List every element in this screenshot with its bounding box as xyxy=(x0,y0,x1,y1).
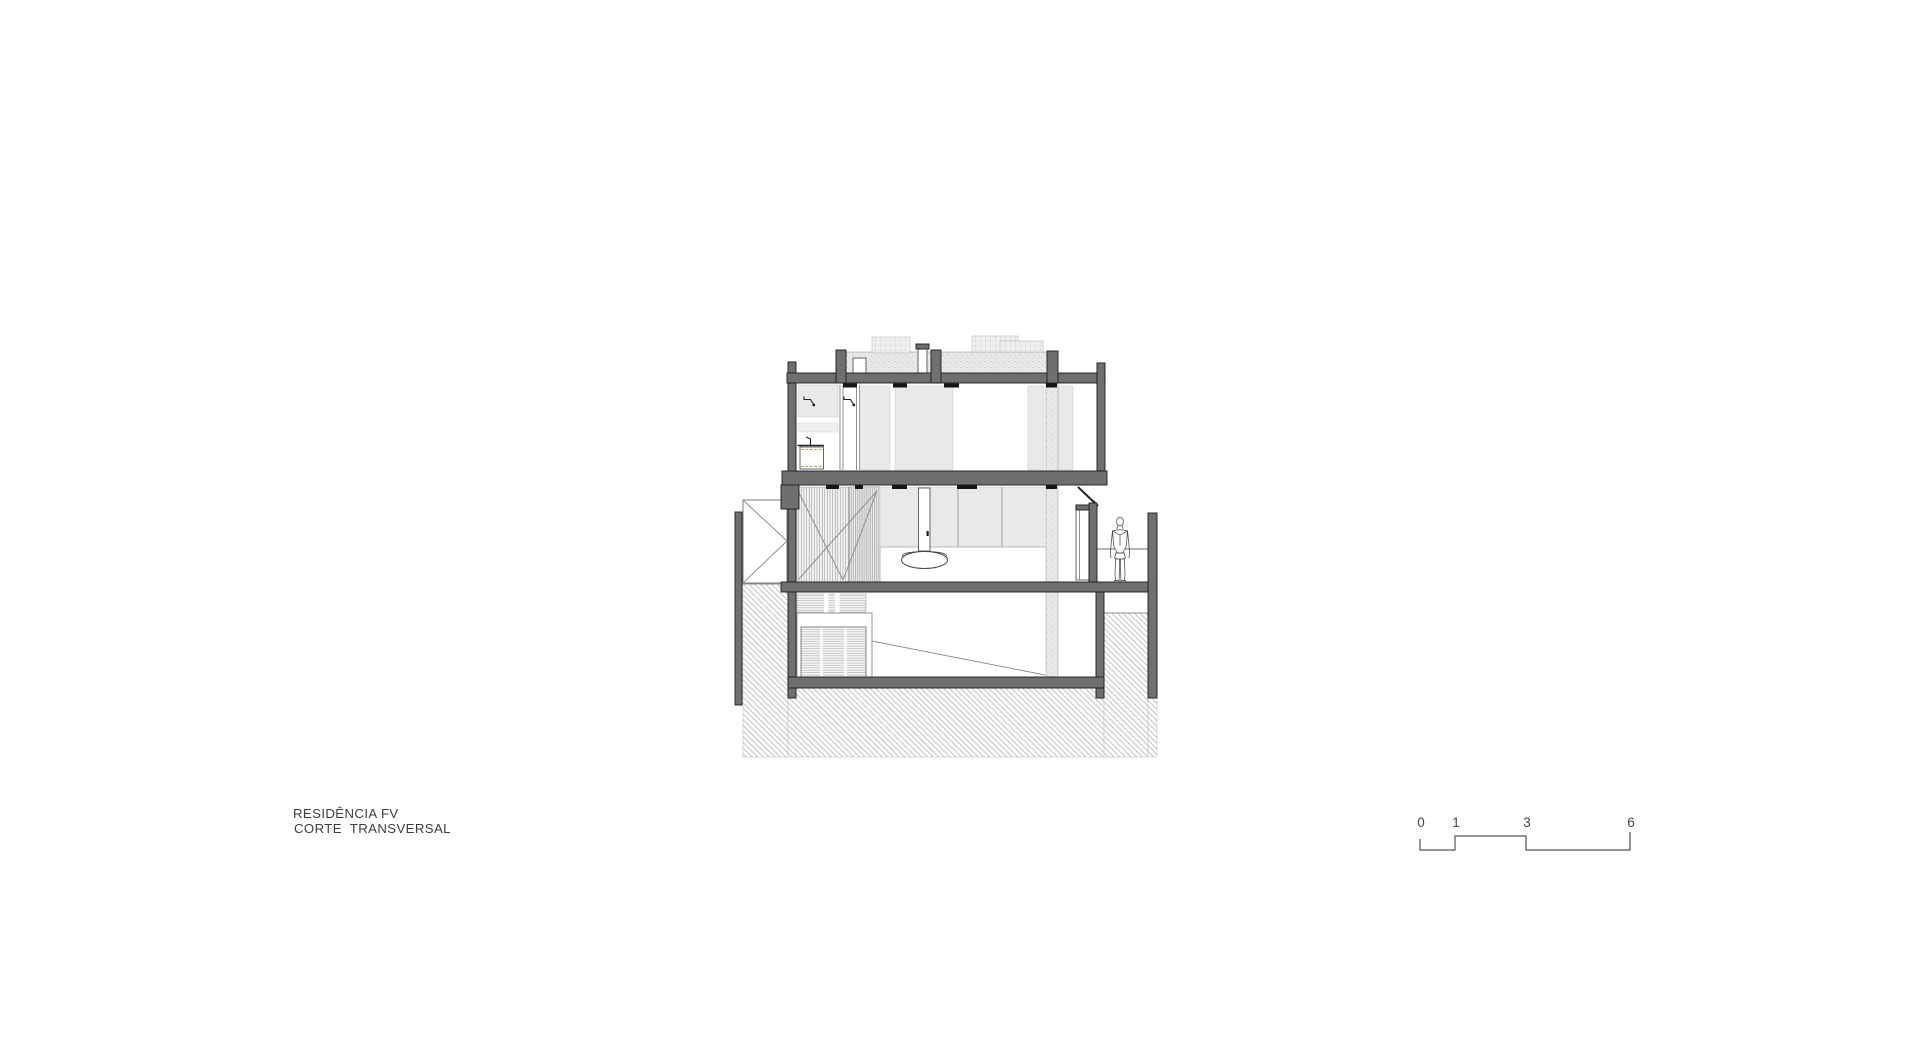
scale-label-0: 0 xyxy=(1417,815,1425,830)
louvered-garage-panel xyxy=(801,627,866,679)
chimney-cap xyxy=(916,344,929,349)
ramp-line xyxy=(872,641,1045,675)
project-name: RESIDÊNCIA FV xyxy=(293,806,399,821)
upper-glazing-panel xyxy=(1059,386,1073,470)
upper-floor-slab xyxy=(782,471,1107,485)
title-block: RESIDÊNCIA FV CORTE TRANSVERSAL xyxy=(293,806,451,836)
terrace-door-frame xyxy=(1076,505,1089,580)
ground-floor xyxy=(743,487,1148,583)
roof-parapet xyxy=(931,350,941,383)
scale-label-6: 6 xyxy=(1627,815,1635,830)
shower-arm-icon xyxy=(844,397,855,407)
drawing-name: CORTE TRANSVERSAL xyxy=(294,821,451,836)
section-sheet: RESIDÊNCIA FV CORTE TRANSVERSAL 0 1 3 6 xyxy=(0,0,1920,1043)
edge-beam xyxy=(781,485,799,509)
scale-label-3: 3 xyxy=(1523,815,1531,830)
ground-floor-slab xyxy=(781,582,1157,592)
chimney xyxy=(918,349,927,375)
slatted-screen-wall-dense xyxy=(849,487,880,582)
green-roof-substrate-right xyxy=(941,352,1047,374)
faucet-icon xyxy=(806,437,811,445)
roof-parapet xyxy=(836,350,846,383)
basement-slab xyxy=(788,677,1104,688)
roof-planting-mound xyxy=(872,337,910,353)
retaining-wall-far-left xyxy=(735,512,742,705)
human-figure xyxy=(1111,517,1130,582)
bathroom-shelf-band xyxy=(798,423,838,432)
roof-planting-mound xyxy=(1000,341,1043,352)
louver-gap xyxy=(844,628,847,679)
vanity-cabinet xyxy=(798,437,825,469)
louver-gap xyxy=(820,628,823,679)
right-wall-ground xyxy=(1089,503,1097,582)
garage-swing-door xyxy=(743,500,787,583)
upper-glazing-panel xyxy=(895,386,953,470)
roof-level xyxy=(846,336,1047,376)
bathroom-wall-tile xyxy=(798,385,838,417)
basement xyxy=(797,594,1045,682)
roof-parapet xyxy=(1047,351,1058,383)
louver-vent-band xyxy=(797,594,866,612)
door-head xyxy=(1076,505,1089,510)
louver-gap xyxy=(835,594,840,613)
louver-gap xyxy=(824,594,829,613)
concrete-wall-beyond xyxy=(1046,383,1058,677)
scale-label-1: 1 xyxy=(1452,815,1460,830)
living-glazing-band xyxy=(880,487,1046,547)
upper-glazing-panel xyxy=(1028,386,1044,470)
scale-bar-line xyxy=(1420,832,1630,850)
left-wall xyxy=(788,362,796,698)
terrace-parapet xyxy=(1148,513,1157,698)
scale-bar: 0 1 3 6 xyxy=(1417,815,1635,850)
upper-glazing-panel xyxy=(860,386,890,470)
right-wall-upper xyxy=(1097,363,1105,471)
